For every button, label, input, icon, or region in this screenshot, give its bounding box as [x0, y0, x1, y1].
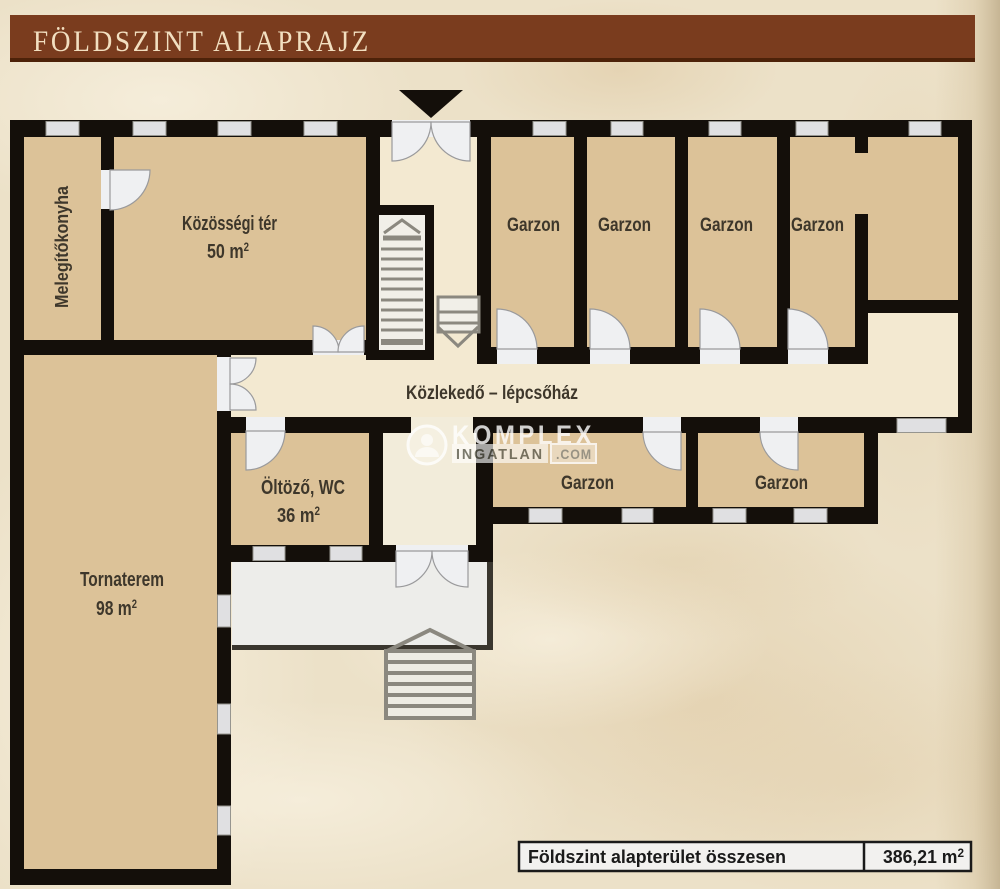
svg-text:36 m2: 36 m2 [277, 504, 320, 527]
svg-text:FÖLDSZINT ALAPRAJZ: FÖLDSZINT ALAPRAJZ [33, 25, 371, 58]
svg-text:Tornaterem: Tornaterem [80, 569, 164, 591]
svg-text:Közösségi tér: Közösségi tér [182, 213, 277, 235]
svg-text:386,21 m2: 386,21 m2 [883, 846, 964, 867]
svg-text:Garzon: Garzon [598, 215, 651, 236]
svg-text:98 m2: 98 m2 [96, 597, 137, 620]
svg-text:Melegítőkonyha: Melegítőkonyha [52, 185, 72, 308]
svg-text:Garzon: Garzon [791, 215, 844, 236]
svg-text:Földszint alapterület összesen: Földszint alapterület összesen [528, 847, 786, 867]
svg-text:Garzon: Garzon [507, 215, 560, 236]
svg-text:INGATLAN: INGATLAN [456, 446, 544, 463]
svg-text:50 m2: 50 m2 [207, 240, 249, 263]
svg-text:.COM: .COM [556, 446, 592, 462]
svg-text:Garzon: Garzon [700, 215, 753, 236]
svg-text:Közlekedő – lépcsőház: Közlekedő – lépcsőház [406, 383, 578, 404]
svg-text:Garzon: Garzon [755, 473, 808, 494]
svg-text:Garzon: Garzon [561, 473, 614, 494]
svg-text:Öltöző, WC: Öltöző, WC [261, 476, 345, 499]
